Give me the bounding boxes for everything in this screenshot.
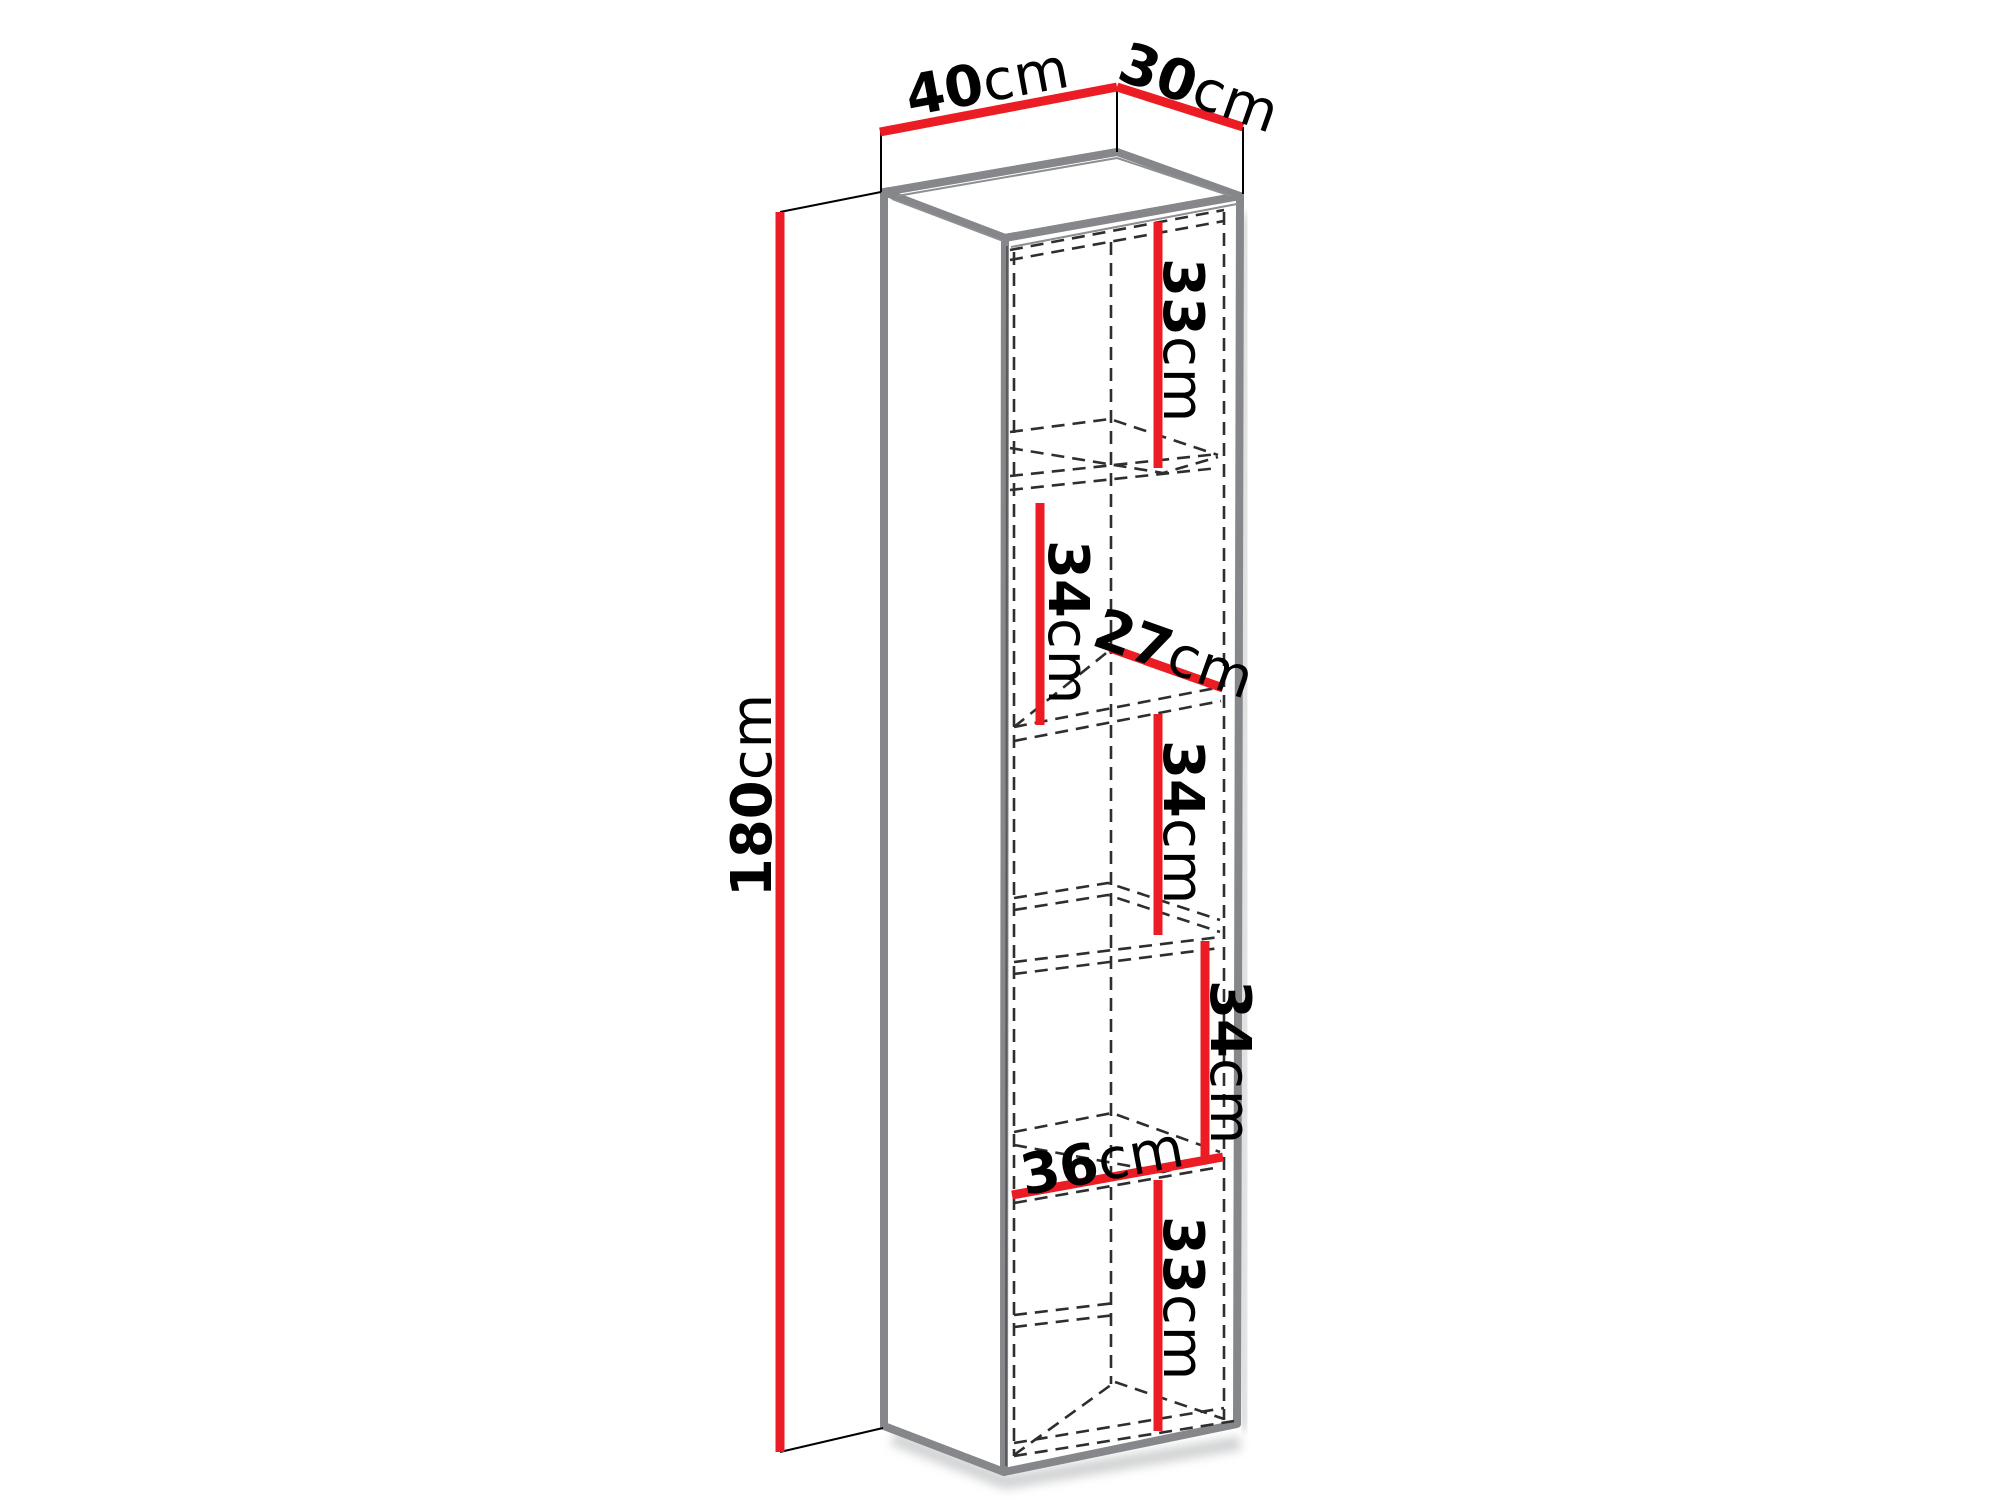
cabinet-diagram-svg: 40cm 30cm 180cm 33cm 34cm 27cm 34cm 34cm… [0,0,2000,1500]
cabinet-left-side-face [884,192,1005,1472]
height-extension-top [780,192,881,212]
compartment-3-label: 34cm [1150,740,1215,905]
width-label: 40cm [900,36,1074,130]
left-panel-inner-edge [1006,246,1007,1466]
compartment-4-label: 34cm [1197,980,1262,1145]
height-label: 180cm [720,693,785,897]
dimension-diagram: 40cm 30cm 180cm 33cm 34cm 27cm 34cm 34cm… [0,0,2000,1500]
compartment-1-label: 33cm [1150,258,1215,423]
compartment-2-label: 34cm [1035,540,1100,705]
depth-label: 30cm [1110,30,1287,146]
height-extension-bottom [780,1428,883,1452]
compartment-5-label: 33cm [1150,1216,1215,1381]
